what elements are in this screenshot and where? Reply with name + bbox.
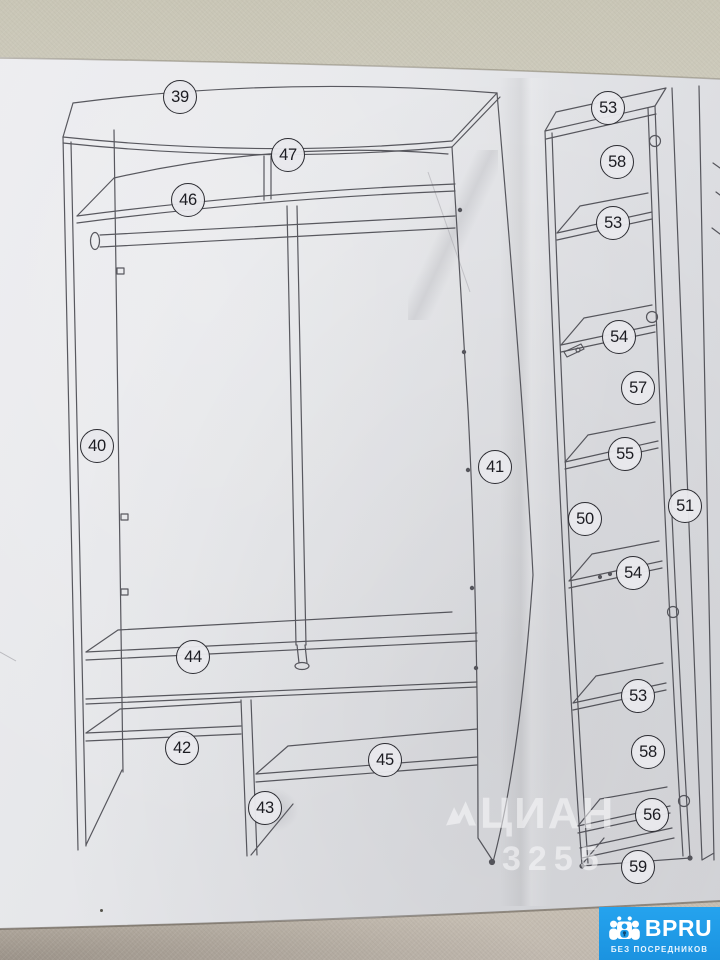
part-callout-55: 55 [608, 437, 642, 471]
part-callout-56: 56 [635, 798, 669, 832]
badge-brand-text: BPRU [645, 917, 712, 940]
part-callout-47: 47 [271, 138, 305, 172]
bpru-people-icon [607, 914, 642, 943]
badge-tagline-text: БЕЗ ПОСРЕДНИКОВ [611, 945, 708, 954]
part-callout-43: 43 [248, 791, 282, 825]
part-callout-59: 59 [621, 850, 655, 884]
part-callout-58: 58 [600, 145, 634, 179]
part-callout-39: 39 [163, 80, 197, 114]
part-callout-44: 44 [176, 640, 210, 674]
part-callout-54: 54 [602, 320, 636, 354]
part-callout-51: 51 [668, 489, 702, 523]
part-callout-45: 45 [368, 743, 402, 777]
photographed-assembly-diagram: 39 47 46 40 41 44 42 45 43 53 58 53 54 5… [0, 0, 720, 960]
part-callout-53: 53 [591, 91, 625, 125]
furniture-line-drawing [0, 0, 720, 960]
part-callout-54: 54 [616, 556, 650, 590]
part-callout-42: 42 [165, 731, 199, 765]
part-callout-46: 46 [171, 183, 205, 217]
wardrobe-drawing [63, 86, 533, 864]
part-callout-57: 57 [621, 371, 655, 405]
part-callout-41: 41 [478, 450, 512, 484]
paper-speck [100, 909, 103, 912]
part-callout-53: 53 [621, 679, 655, 713]
part-callout-58: 58 [631, 735, 665, 769]
part-callout-40: 40 [80, 429, 114, 463]
part-callout-50: 50 [568, 502, 602, 536]
bpru-watermark-badge: BPRU БЕЗ ПОСРЕДНИКОВ [599, 907, 720, 960]
part-callout-53: 53 [596, 206, 630, 240]
